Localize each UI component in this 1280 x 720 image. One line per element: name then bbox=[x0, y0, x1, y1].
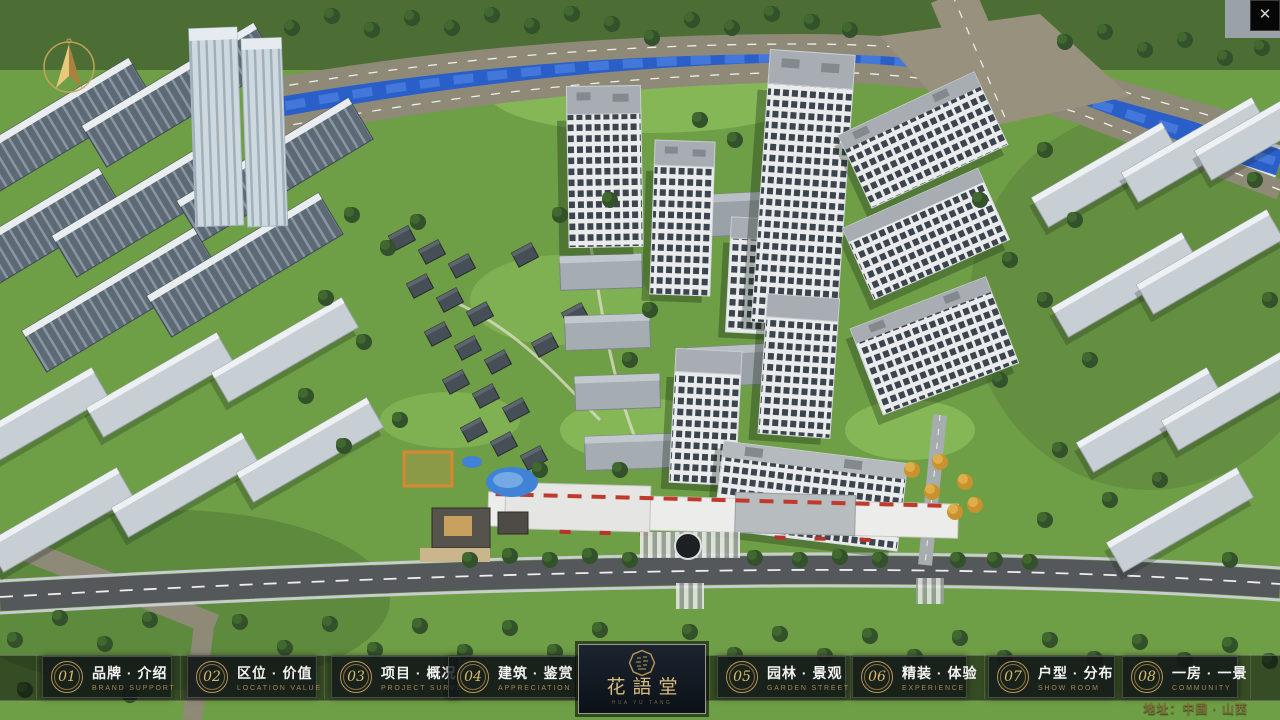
nav-label-zh: 精装 · 体验 bbox=[902, 663, 977, 683]
nav-label-zh: 户型 · 分布 bbox=[1038, 663, 1113, 683]
nav-label-en: EXPERIENCE bbox=[902, 685, 977, 692]
nav-divider bbox=[1250, 655, 1251, 699]
project-logo-panel[interactable]: 花語堂 HUA YU TANG bbox=[578, 644, 706, 714]
aerial-masterplan-render[interactable] bbox=[0, 0, 1280, 720]
nav-label-en: GARDEN STREET bbox=[767, 685, 850, 692]
nav-label-en: BRAND SUPPORT bbox=[92, 685, 176, 692]
nav-divider bbox=[709, 655, 710, 699]
nav-number-badge: 05 bbox=[726, 661, 758, 693]
nav-label-en: LOCATION VALUE bbox=[237, 685, 322, 692]
nav-label-zh: 建筑 · 鉴赏 bbox=[498, 663, 573, 683]
nav-item-location-value[interactable]: 02 区位 · 价值 LOCATION VALUE bbox=[187, 656, 317, 698]
project-logo-subtext: HUA YU TANG bbox=[612, 700, 673, 706]
project-address: 地址：中国 · 山西 bbox=[1143, 700, 1248, 717]
nav-item-brand-intro[interactable]: 01 品牌 · 介绍 BRAND SUPPORT bbox=[42, 656, 172, 698]
nav-number-badge: 02 bbox=[196, 661, 228, 693]
nav-item-floorplans[interactable]: 07 户型 · 分布 SHOW ROOM bbox=[988, 656, 1115, 698]
nav-label-en: SHOW ROOM bbox=[1038, 685, 1113, 692]
nav-number-badge: 07 bbox=[997, 661, 1029, 693]
nav-item-community[interactable]: 08 一房 · 一景 COMMUNITY bbox=[1122, 656, 1238, 698]
nav-number-badge: 06 bbox=[861, 661, 893, 693]
nav-item-garden-landscape[interactable]: 05 园林 · 景观 GARDEN STREET bbox=[717, 656, 846, 698]
project-logo-title: 花語堂 bbox=[599, 678, 684, 697]
compass-north-icon bbox=[38, 36, 100, 98]
nav-divider bbox=[36, 655, 37, 699]
nav-divider bbox=[850, 655, 851, 699]
nav-divider bbox=[324, 655, 325, 699]
nav-number-badge: 04 bbox=[457, 661, 489, 693]
nav-divider bbox=[984, 655, 985, 699]
nav-label-zh: 园林 · 景观 bbox=[767, 663, 850, 683]
nav-label-en: APPRECIATION bbox=[498, 685, 573, 692]
nav-item-experience[interactable]: 06 精装 · 体验 EXPERIENCE bbox=[852, 656, 967, 698]
nav-label-en: COMMUNITY bbox=[1172, 685, 1247, 692]
nav-item-architecture[interactable]: 04 建筑 · 鉴赏 APPRECIATION bbox=[448, 656, 577, 698]
nav-label-zh: 区位 · 价值 bbox=[237, 663, 322, 683]
nav-label-zh: 品牌 · 介绍 bbox=[92, 663, 176, 683]
nav-divider bbox=[180, 655, 181, 699]
close-button[interactable]: ✕ bbox=[1250, 0, 1280, 31]
nav-number-badge: 01 bbox=[51, 661, 83, 693]
nav-number-badge: 08 bbox=[1131, 661, 1163, 693]
sales-kiosk-app: ✕ 01 品牌 · 介绍 BRAND SUPPORT 02 区位 · 价值 LO… bbox=[0, 0, 1280, 720]
nav-item-project-survey[interactable]: 03 项目 · 概况 PROJECT SURVEY bbox=[331, 656, 460, 698]
nav-label-zh: 一房 · 一景 bbox=[1172, 663, 1247, 683]
nav-number-badge: 03 bbox=[340, 661, 372, 693]
seal-emblem-icon bbox=[628, 649, 656, 677]
